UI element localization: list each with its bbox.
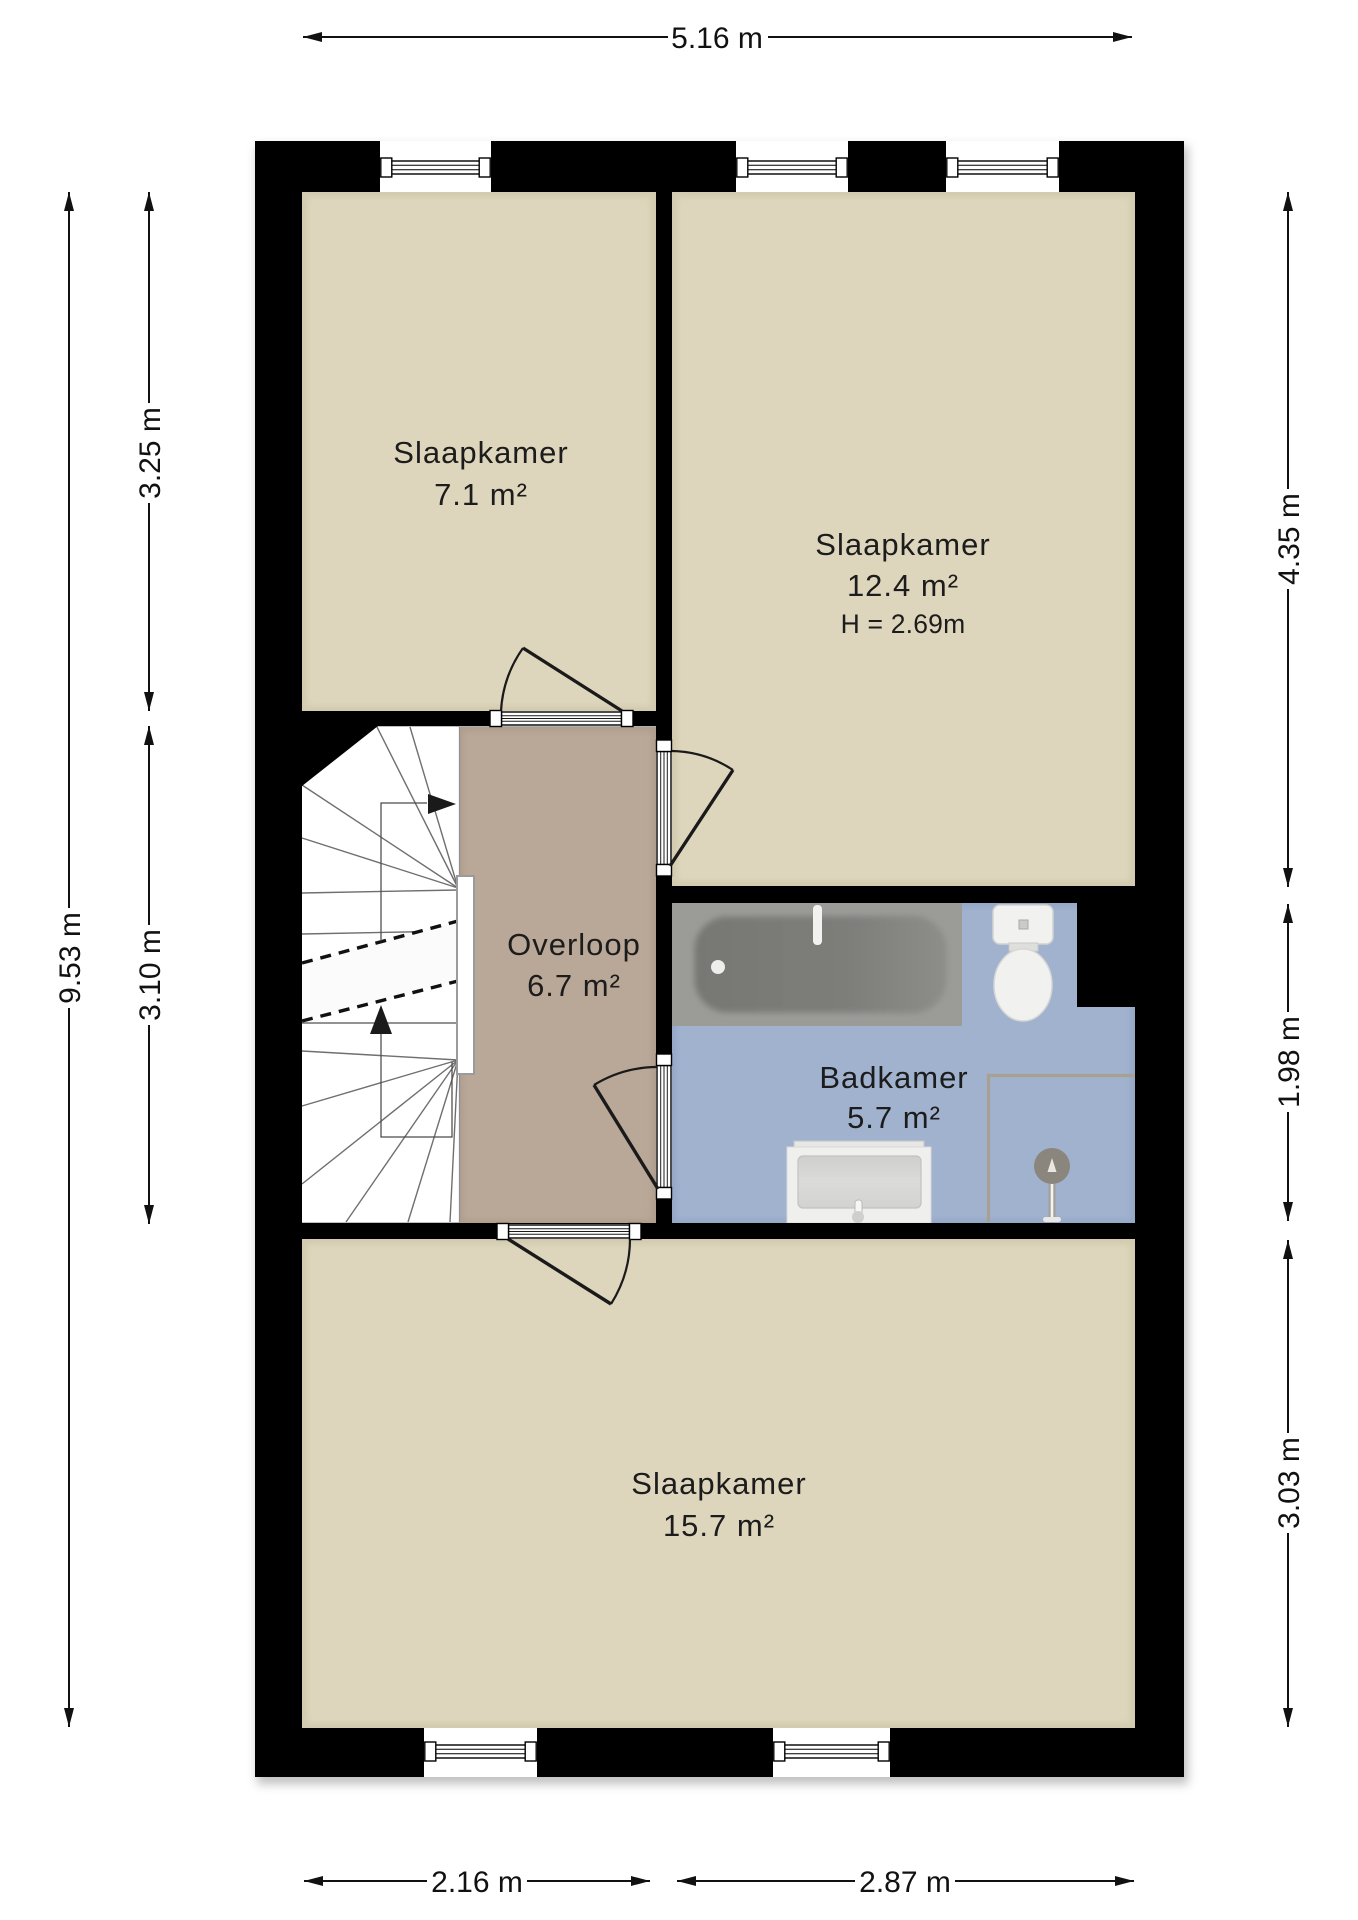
svg-text:3.10 m: 3.10 m: [134, 929, 167, 1021]
svg-text:6.7 m²: 6.7 m²: [527, 968, 621, 1003]
svg-text:1.98 m: 1.98 m: [1273, 1016, 1306, 1108]
svg-text:Slaapkamer: Slaapkamer: [631, 1466, 806, 1501]
svg-text:3.03 m: 3.03 m: [1273, 1437, 1306, 1529]
svg-text:Badkamer: Badkamer: [819, 1060, 968, 1095]
svg-text:12.4 m²: 12.4 m²: [847, 568, 959, 603]
svg-text:2.87 m: 2.87 m: [859, 1866, 951, 1899]
svg-text:H = 2.69m: H = 2.69m: [841, 609, 966, 639]
svg-text:5.16 m: 5.16 m: [671, 22, 763, 55]
svg-text:9.53 m: 9.53 m: [54, 912, 87, 1004]
svg-text:7.1 m²: 7.1 m²: [434, 477, 528, 512]
svg-text:Slaapkamer: Slaapkamer: [815, 527, 990, 562]
svg-text:3.25 m: 3.25 m: [134, 407, 167, 499]
svg-text:5.7 m²: 5.7 m²: [847, 1100, 941, 1135]
svg-text:Overloop: Overloop: [507, 927, 641, 962]
svg-text:15.7 m²: 15.7 m²: [663, 1508, 775, 1543]
svg-text:4.35 m: 4.35 m: [1273, 493, 1306, 585]
svg-text:Slaapkamer: Slaapkamer: [393, 435, 568, 470]
svg-text:2.16 m: 2.16 m: [431, 1866, 523, 1899]
